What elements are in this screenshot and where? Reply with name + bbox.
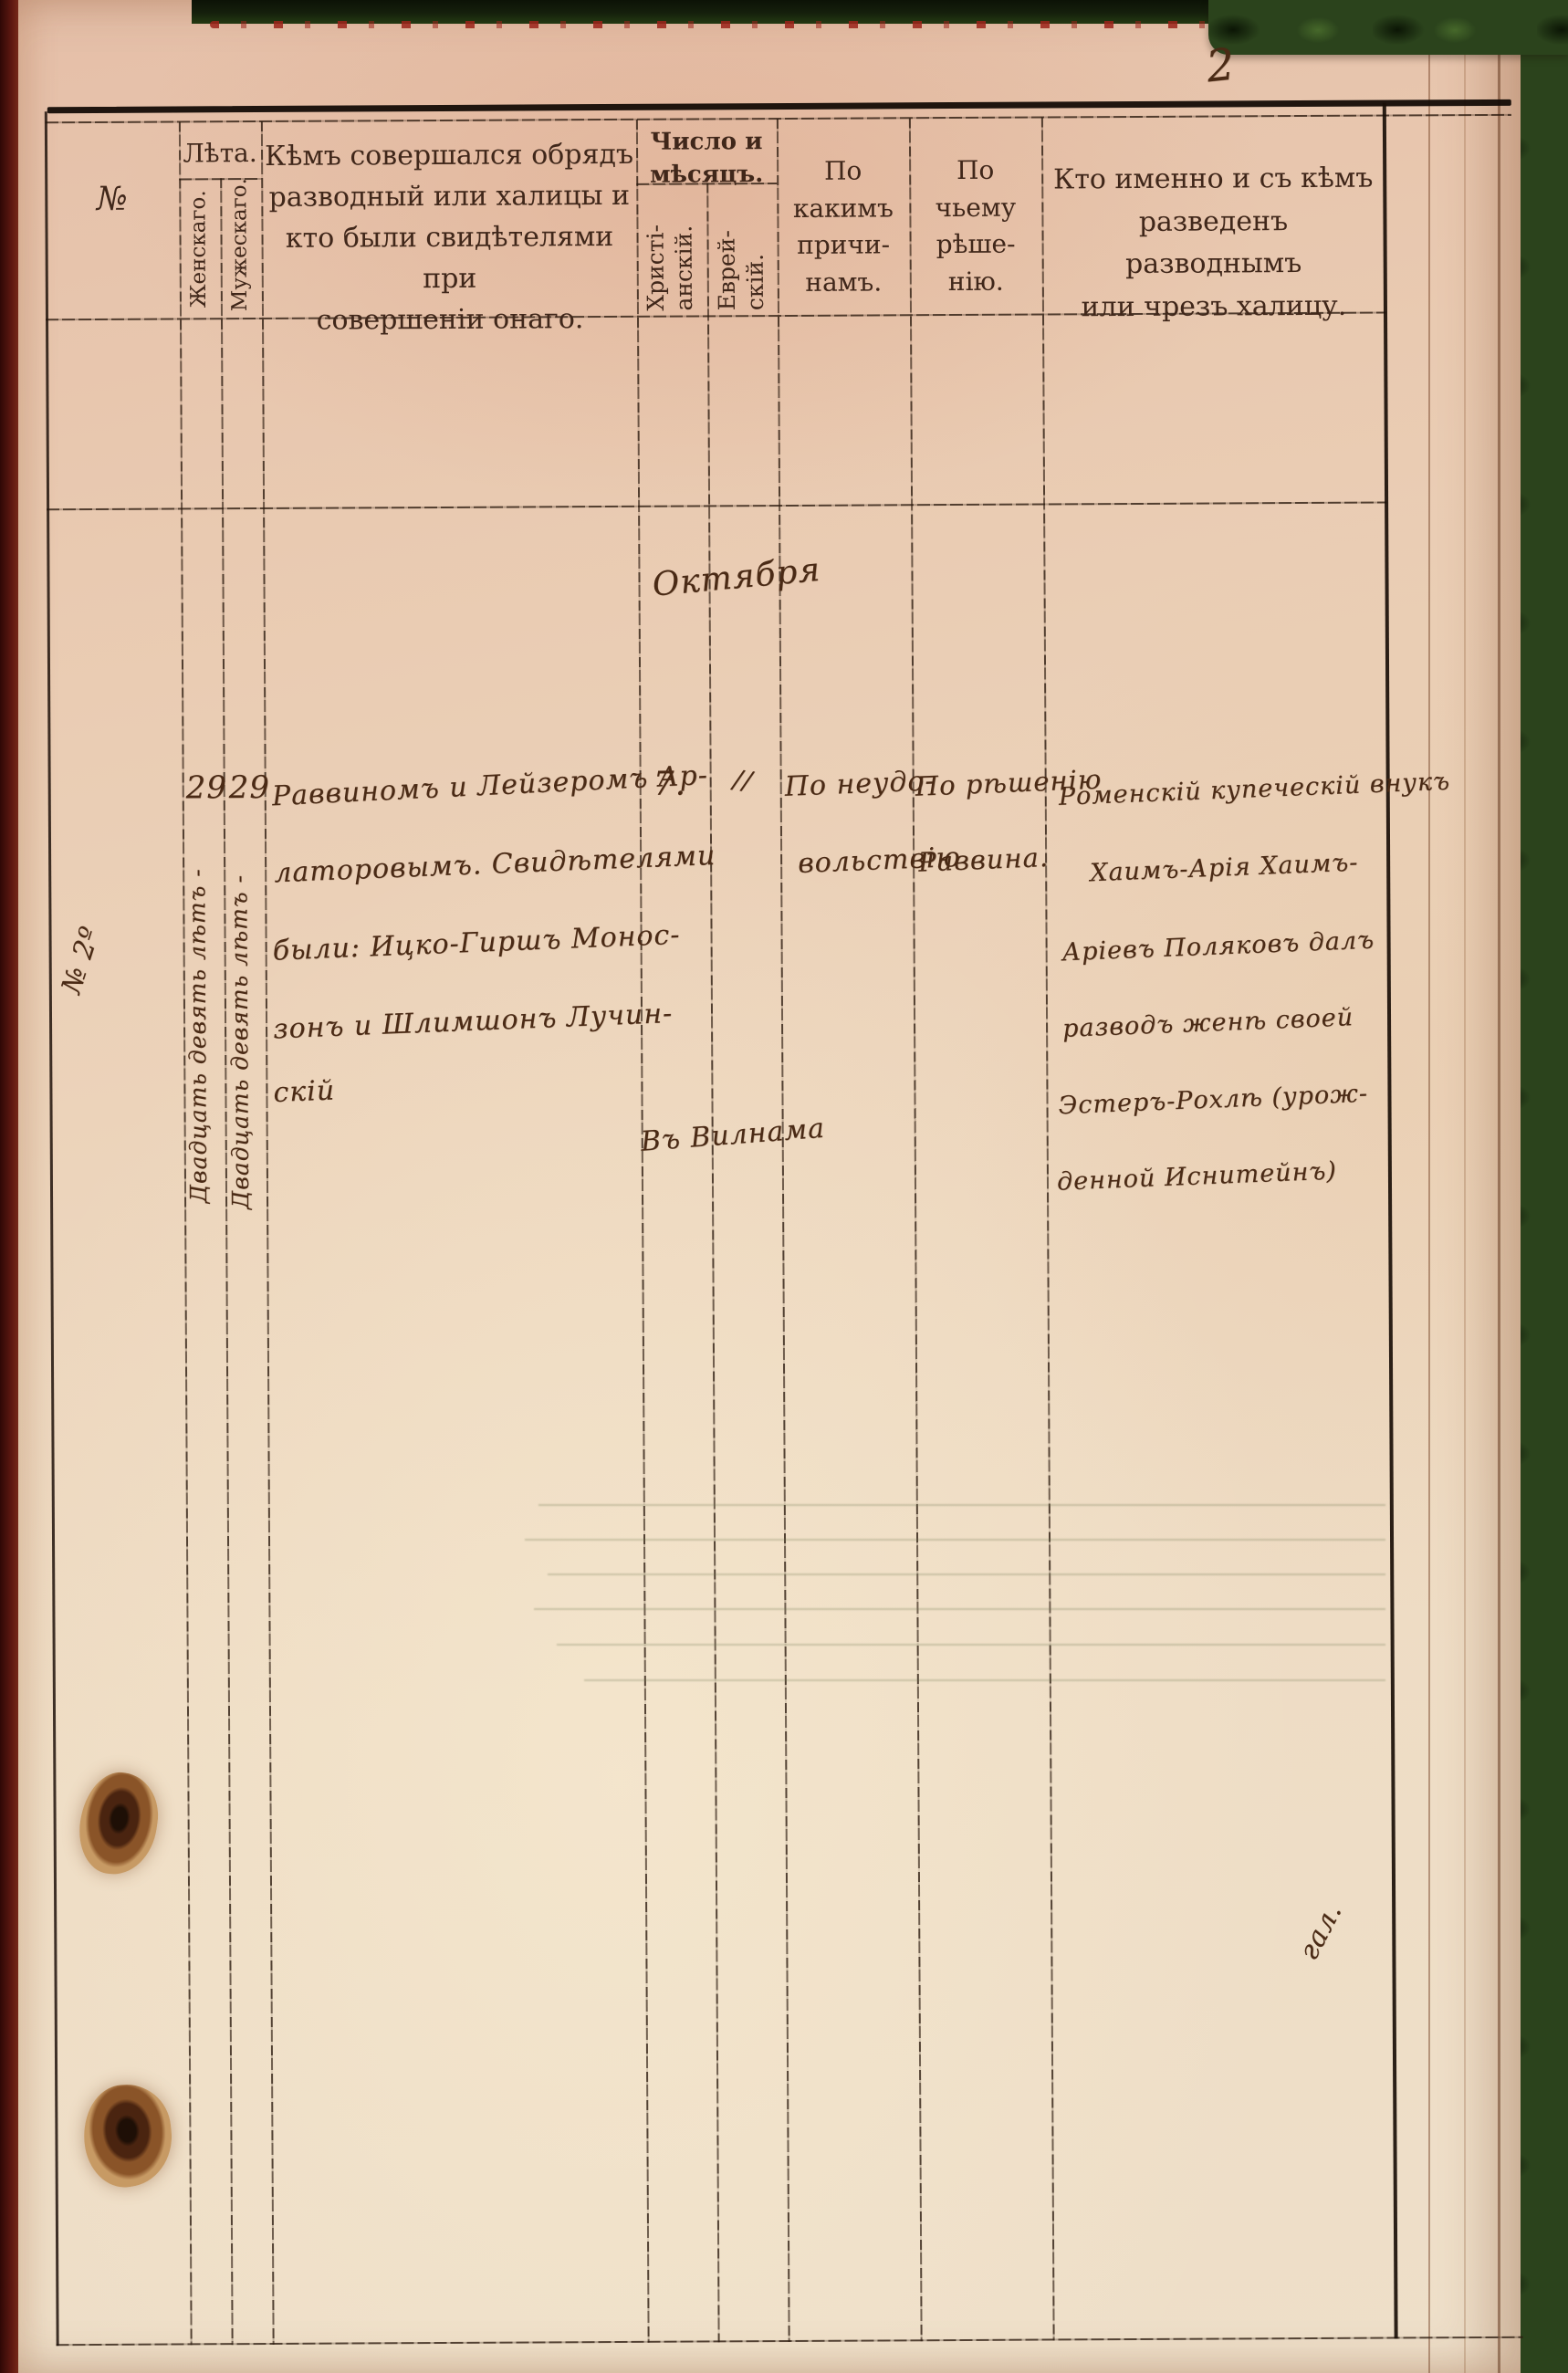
register-table: № Лѣта. Женскаго. Мужескаго. Кѣмъ соверш… [0,0,1568,2373]
header-line: разводный или халицы и [265,175,633,218]
record-line: зонъ и Шлимшонъ Лучин- [273,998,674,1046]
scanned-register-page: 2 № Лѣта. Женскаго. Мужескаго. Кѣмъ сове… [0,0,1568,2373]
record-line: Раввина. [918,842,1050,878]
header-line: Кѣмъ совершался обрядъ [265,134,633,177]
header-line: совершеніи онаго. [266,298,634,341]
table-top-rule [47,99,1511,113]
column-header-years-male: Мужескаго. [225,169,256,311]
record-line: По неудо- [784,765,936,803]
record-month: Октября [651,551,822,604]
header-line: По [777,152,909,190]
header-line: какимъ [777,190,909,227]
header-line: анскій. [670,186,699,310]
column-header-who: Кто именно и съ кѣмъ разведенъ разводным… [1049,158,1378,329]
column-header-officiant: Кѣмъ совершался обрядъ разводный или хал… [265,134,634,341]
record-place-note: Въ Вилнама [640,1113,827,1158]
show-through-line [548,1573,1385,1575]
record-age-female-words: Двадцать девять лѣтъ - [183,820,212,1203]
header-line: причи- [777,226,909,264]
record-line: Раввиномъ и Лейзеромъ Ар- [271,759,708,812]
col-line-no [179,121,193,2345]
record-line: Роменскій купеческій внукъ [1058,768,1450,811]
col-line-officiant [636,120,650,2343]
record-line: Аріевъ Поляковъ далъ [1061,926,1375,967]
record-day-christian: 7. [653,766,687,803]
show-through-line [534,1608,1385,1610]
table-left-border [45,111,59,2346]
col-line-reasons [909,118,923,2341]
record-line: латоровымъ. Свидѣтелями [274,840,716,889]
col-line-decision [1041,118,1055,2341]
header-line: намъ. [778,264,910,301]
band-rule [47,502,1386,511]
column-header-decision: По чьему рѣше- нію. [909,152,1042,301]
table-right-border [1383,103,1398,2339]
col-line-years-split [220,178,233,2345]
show-through-line [557,1644,1385,1646]
show-through-line [525,1539,1385,1541]
corner-scribble: гал. [1292,1845,1375,1965]
col-line-years [261,121,275,2345]
header-line: Еврей- [712,186,741,310]
header-line: Число и [636,126,777,160]
column-header-reasons: По какимъ причи- намъ. [777,152,910,301]
column-header-no: № [45,176,179,222]
header-line: нію. [910,263,1042,300]
column-header-date-jewish: Еврей- скій. [712,186,769,310]
col-line-date [777,119,790,2342]
record-line: Эстеръ-Рохлѣ (урож- [1058,1080,1369,1121]
header-line: По [909,152,1041,190]
header-line: чьему [909,189,1041,226]
column-header-years: Лѣта. [179,136,261,172]
record-age-male: 29 [229,769,270,806]
header-line: разведенъ разводнымъ [1049,200,1377,287]
show-through-line [538,1504,1385,1506]
header-line: или чрезъ халицу. [1050,285,1378,329]
record-line: денной Иснитейнъ) [1056,1156,1337,1196]
column-header-years-female: Женскаго. [184,171,214,308]
column-header-date: Число и мѣсяцъ. [636,126,777,193]
header-line: Христі- [641,187,670,311]
record-line: были: Ицко-Гиршъ Монос- [272,919,681,967]
header-line: Кто именно и съ кѣмъ [1049,158,1377,202]
record-line: скій [273,1074,336,1109]
record-age-male-words: Двадцать девять лѣтъ - [225,826,254,1209]
record-line: разводъ женѣ своей [1062,1003,1354,1043]
header-line: рѣше- [909,226,1041,264]
header-line: скій. [741,186,770,310]
record-line: Хаимъ-Арія Хаимъ- [1090,849,1359,888]
record-age-female: 29 [186,769,227,806]
show-through-line [584,1679,1385,1681]
record-day-jewish-ditto: // [732,764,755,796]
header-line: кто были свидѣтелями при [265,216,633,300]
record-margin-note: № 2º [56,892,117,997]
column-header-date-christian: Христі- анскій. [641,186,698,310]
